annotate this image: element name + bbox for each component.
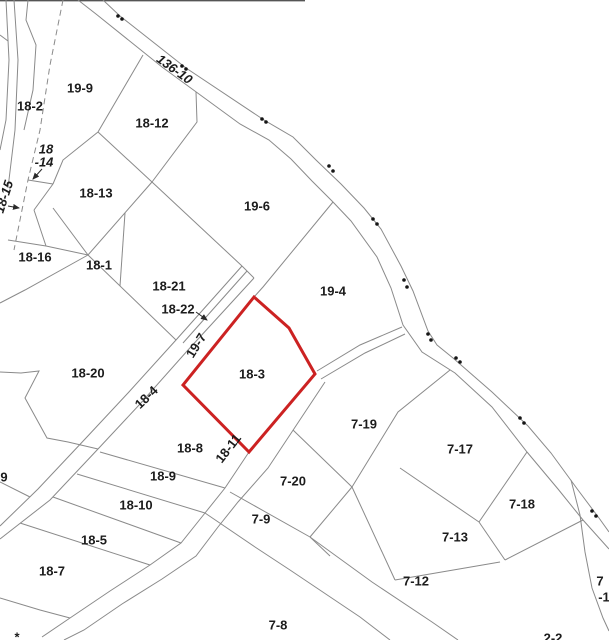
cadastral-map: 19-918-2136-1018-1218-1418-1518-1319-618… <box>0 0 609 640</box>
parcel-label-18-2: 18-2 <box>17 98 43 113</box>
parcel-label-7-17: 7-17 <box>447 441 473 456</box>
parcel-boundary-line <box>400 468 479 522</box>
parcel-label-18-3: 18-3 <box>239 366 265 381</box>
parcel-label-19-9: 19-9 <box>67 80 93 95</box>
parcel-label-18-7: 18-7 <box>39 563 65 578</box>
parcel-boundary-line <box>242 266 254 278</box>
parcel-boundary-line <box>505 520 583 560</box>
arrow-18-15 <box>8 206 19 208</box>
parcel-boundary-line <box>53 497 181 543</box>
boundary-point-dot <box>116 14 120 18</box>
parcel-boundary-line <box>571 480 609 631</box>
parcel-boundary-line <box>479 522 505 560</box>
parcel-label-18-5: 18-5 <box>81 532 107 547</box>
parcel-label-7-12: 7-12 <box>403 573 429 588</box>
parcel-label-9: 9 <box>0 469 7 484</box>
parcel-label-18-8: 18-8 <box>177 440 203 455</box>
boundary-point-dot <box>594 514 598 518</box>
boundary-point-dot <box>402 278 406 282</box>
parcel-boundary-line <box>8 0 18 188</box>
parcel-boundary-line <box>205 513 390 640</box>
parcel-label-7-20: 7-20 <box>280 473 306 488</box>
parcel-boundary-line <box>152 92 197 182</box>
boundary-point-dot <box>331 169 335 173</box>
parcel-label-7-19: 7-19 <box>351 416 377 431</box>
parcel-boundary-line <box>53 132 98 184</box>
parcel-label-18-12: 18-12 <box>135 115 168 130</box>
parcel-boundary-line <box>0 598 70 618</box>
parcel-boundary-line <box>310 537 330 556</box>
parcel-boundary-line <box>321 334 405 379</box>
parcel-label-18-13: 18-13 <box>79 185 112 200</box>
parcel-boundary-line <box>34 184 53 210</box>
parcel-boundary-line <box>78 0 609 549</box>
parcel-boundary-line <box>0 0 9 150</box>
parcel-label-18-15: 18-15 <box>0 178 16 215</box>
boundary-point-dot <box>454 356 458 360</box>
parcel-boundary-line <box>352 487 395 580</box>
cadastral-map-page: 19-918-2136-1018-1218-1418-1518-1319-618… <box>0 0 609 640</box>
boundary-point-dot <box>405 285 409 289</box>
parcel-boundary-line <box>120 213 125 286</box>
parcel-label-19-4: 19-4 <box>320 283 347 298</box>
parcel-boundary-line <box>42 374 315 637</box>
parcel-boundary-line <box>34 210 46 246</box>
boundary-point-dot <box>522 421 526 425</box>
arrow-18-14 <box>33 169 42 179</box>
boundary-point-dot <box>458 360 462 364</box>
parcel-label-18-4: 18-4 <box>132 382 162 411</box>
parcel-boundary-line <box>152 182 242 266</box>
parcel-boundary-line <box>28 180 53 184</box>
parcel-label-136-10: 136-10 <box>154 51 196 87</box>
boundary-point-dot <box>375 222 379 226</box>
parcel-labels: 19-918-2136-1018-1218-1418-1518-1319-618… <box>0 51 609 640</box>
parcel-label-7-1b: -1 <box>598 589 609 604</box>
parcel-label-mark: * <box>14 629 20 640</box>
parcel-label-7-13: 7-13 <box>442 529 468 544</box>
parcel-label-18-1: 18-1 <box>86 257 112 272</box>
parcel-label-2-2: 2-2 <box>544 630 563 640</box>
dashed-boundary-line <box>14 0 63 250</box>
parcel-label-7-18: 7-18 <box>509 496 535 511</box>
parcel-label-19-6: 19-6 <box>244 198 270 213</box>
parcel-label-18-20: 18-20 <box>71 365 104 380</box>
parcel-boundary-line <box>64 382 325 640</box>
parcel-boundary-line <box>310 487 352 537</box>
parcel-label-18-21: 18-21 <box>152 278 185 293</box>
parcel-label-18-22: 18-22 <box>161 301 194 316</box>
parcel-label-18-14b: -14 <box>35 154 55 169</box>
boundary-point-dot <box>260 117 264 121</box>
boundary-point-dot <box>264 120 268 124</box>
parcel-label-7-1a: 7 <box>596 573 603 588</box>
boundary-point-dot <box>371 217 375 221</box>
boundary-point-dot <box>120 17 124 21</box>
parcel-label-18-10: 18-10 <box>119 497 152 512</box>
parcel-boundary-line <box>53 208 88 255</box>
parcel-label-7-8: 7-8 <box>269 617 288 632</box>
parcel-boundary-line <box>98 132 152 182</box>
parcel-label-7-9: 7-9 <box>252 511 271 526</box>
parcel-boundary-line <box>317 327 402 371</box>
parcel-boundary-line <box>0 371 98 449</box>
parcel-boundary-line <box>479 452 527 522</box>
parcel-label-18-16: 18-16 <box>18 249 51 264</box>
boundary-point-dot <box>518 416 522 420</box>
parcel-label-18-11: 18-11 <box>212 431 244 466</box>
boundary-point-dot <box>429 338 433 342</box>
boundary-point-dot <box>590 509 594 513</box>
parcel-boundary-line <box>0 35 8 41</box>
boundary-point-dot <box>426 332 430 336</box>
parcel-label-18-9: 18-9 <box>150 468 176 483</box>
boundary-point-dot <box>327 164 331 168</box>
